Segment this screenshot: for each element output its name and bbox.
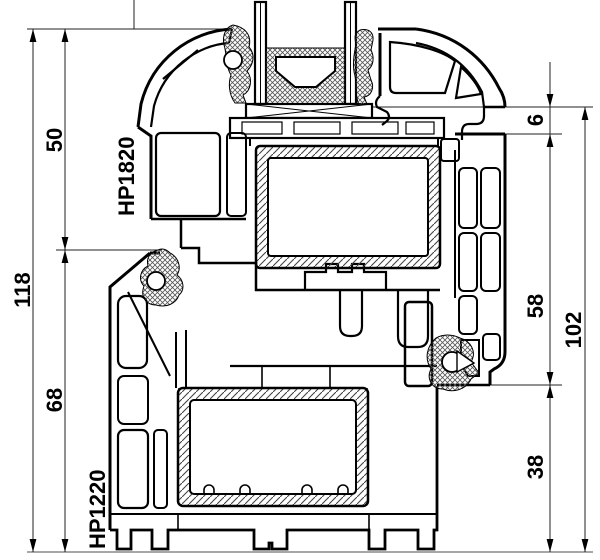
frame-right-face [490, 134, 505, 385]
technical-drawing-page: 118 50 68 6 58 102 38 HP1820 HP1220 [0, 0, 600, 560]
dim-label-50: 50 [42, 128, 67, 152]
profile-cross-section-drawing: 118 50 68 6 58 102 38 HP1820 HP1220 [0, 0, 600, 560]
frame-feet [110, 386, 437, 549]
dimension-labels: 118 50 68 6 58 102 38 [10, 114, 586, 479]
dim-label-6: 6 [523, 114, 548, 126]
dim-label-118: 118 [10, 272, 35, 308]
insulated-glass-unit [230, 2, 444, 146]
dim-label-38: 38 [523, 455, 548, 479]
glazing-bridge [230, 118, 444, 138]
dim-label-68: 68 [42, 388, 67, 412]
frame-steel-reinforcement [178, 388, 368, 506]
glazing-gasket-right [353, 29, 373, 105]
sash-left-face [138, 127, 151, 219]
profile-label-frame: HP1220 [85, 469, 110, 549]
sash-steel-reinforcement [256, 146, 440, 268]
profile-labels: HP1820 HP1220 [85, 136, 139, 549]
dim-label-58: 58 [523, 294, 548, 318]
profile-label-sash: HP1820 [114, 136, 139, 216]
dim-label-102: 102 [561, 312, 586, 349]
